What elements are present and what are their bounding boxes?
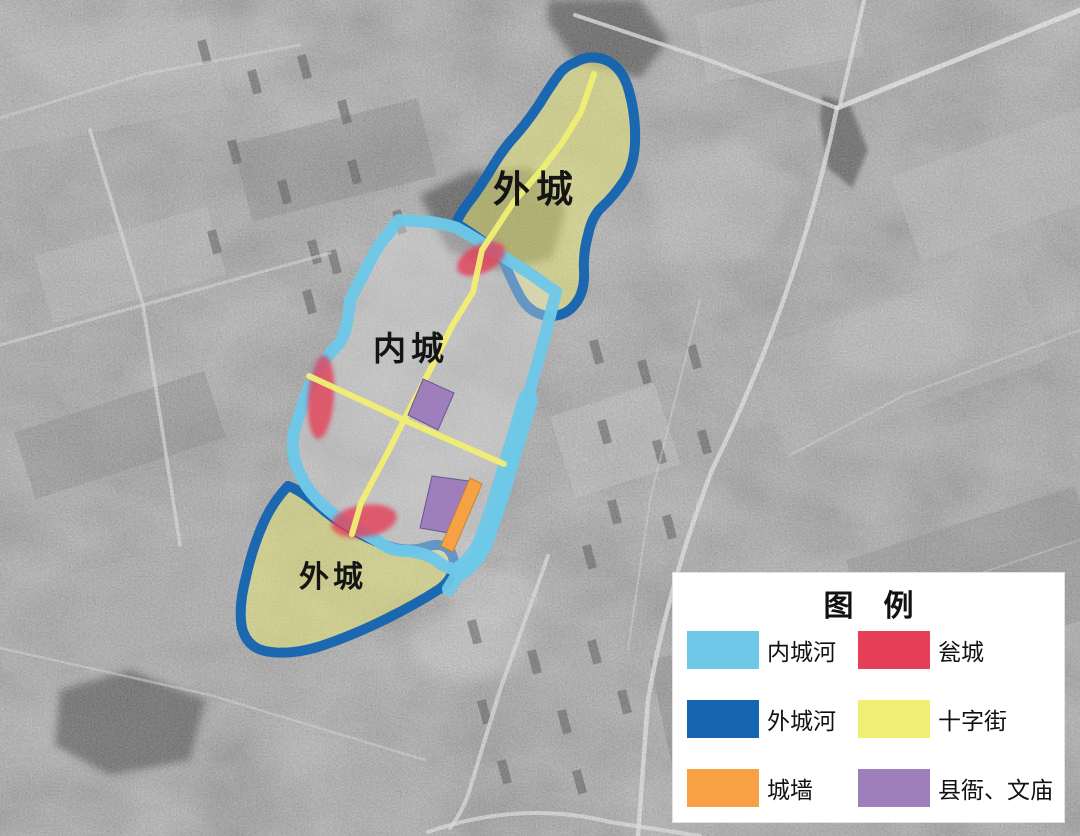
legend-item-inner-moat: 内城河	[687, 631, 858, 669]
legend-swatch-cross-street	[858, 700, 930, 738]
legend-label-barbican: 瓮城	[938, 633, 984, 667]
legend-label-cross-street: 十字街	[938, 702, 1007, 736]
legend-swatch-yamen-temple	[858, 769, 930, 807]
annotated-aerial-map: 外城 内城 外城 图 例 内城河 瓮城 外城河 十字街	[0, 0, 1080, 836]
label-inner-city: 内城	[373, 334, 449, 367]
legend-label-yamen-temple: 县衙、文庙	[938, 771, 1053, 805]
legend-item-outer-moat: 外城河	[687, 700, 858, 738]
legend-swatch-inner-moat	[687, 631, 759, 669]
legend-label-city-wall: 城墙	[767, 771, 813, 805]
legend-item-barbican: 瓮城	[858, 631, 1058, 669]
legend-swatch-city-wall	[687, 769, 759, 807]
legend: 图 例 内城河 瓮城 外城河 十字街 城墙	[672, 572, 1065, 823]
legend-label-inner-moat: 内城河	[767, 633, 836, 667]
legend-item-cross-street: 十字街	[858, 700, 1058, 738]
legend-item-city-wall: 城墙	[687, 769, 858, 807]
legend-swatch-outer-moat	[687, 700, 759, 738]
legend-swatch-barbican	[858, 631, 930, 669]
legend-item-yamen-temple: 县衙、文庙	[858, 769, 1058, 807]
label-outer-city-north: 外城	[493, 172, 579, 209]
legend-label-outer-moat: 外城河	[767, 702, 836, 736]
label-outer-city-south: 外城	[299, 563, 367, 593]
legend-grid: 内城河 瓮城 外城河 十字街 城墙 县衙、文庙	[687, 615, 1058, 822]
